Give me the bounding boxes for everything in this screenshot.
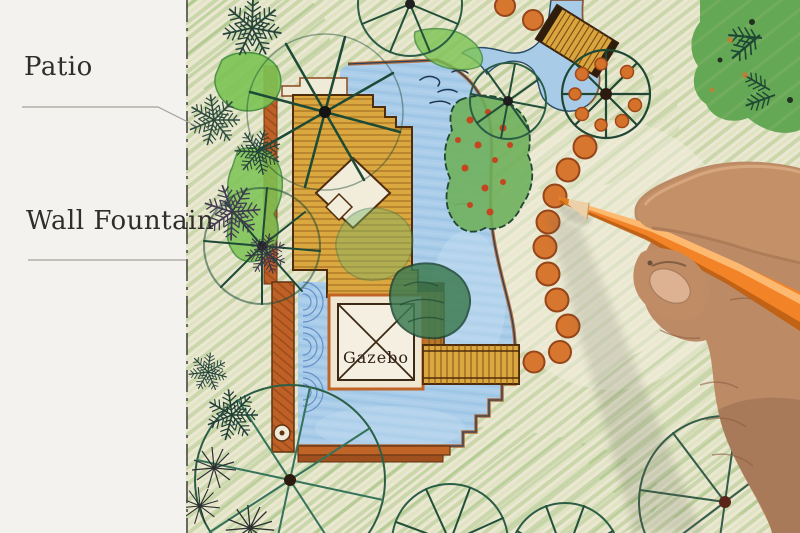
wall-fountain-label: Wall Fountain — [26, 206, 214, 236]
patio-label: Patio — [24, 52, 93, 82]
stone-pencil-target — [544, 185, 567, 208]
gazebo-label: Gazebo — [343, 348, 409, 367]
berry-tree-symbol — [562, 50, 650, 138]
photo-landscape-plan: Gazebo — [0, 0, 800, 533]
boardwalk — [423, 345, 519, 384]
canopy-over-gazebo — [390, 263, 470, 338]
landscape-plan-drawing: Gazebo — [0, 0, 800, 533]
